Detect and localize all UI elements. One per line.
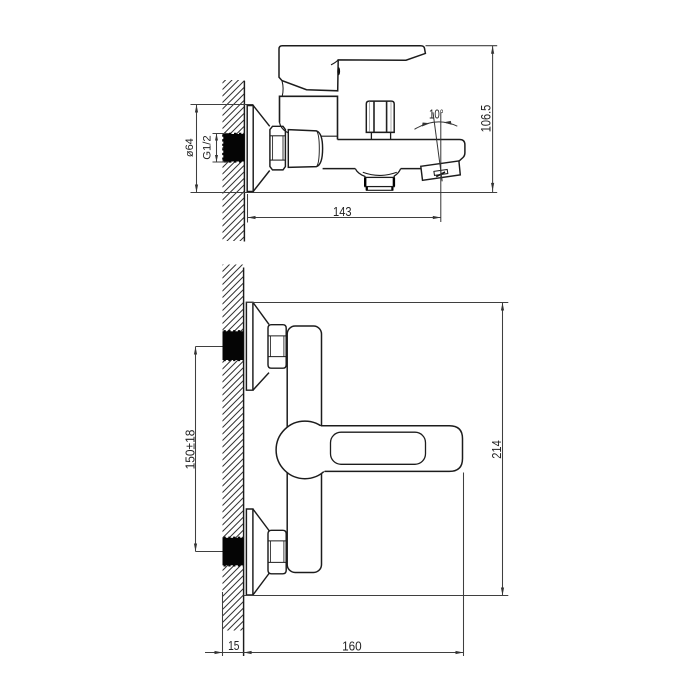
svg-text:143: 143 xyxy=(333,204,352,219)
svg-text:160: 160 xyxy=(342,638,362,653)
svg-text:G1/2: G1/2 xyxy=(202,135,214,160)
svg-text:ø64: ø64 xyxy=(184,138,196,157)
svg-text:150±18: 150±18 xyxy=(183,430,198,470)
svg-text:214: 214 xyxy=(489,440,504,459)
svg-text:15: 15 xyxy=(228,638,239,653)
svg-text:10°: 10° xyxy=(429,107,444,122)
svg-text:106.5: 106.5 xyxy=(478,105,493,133)
